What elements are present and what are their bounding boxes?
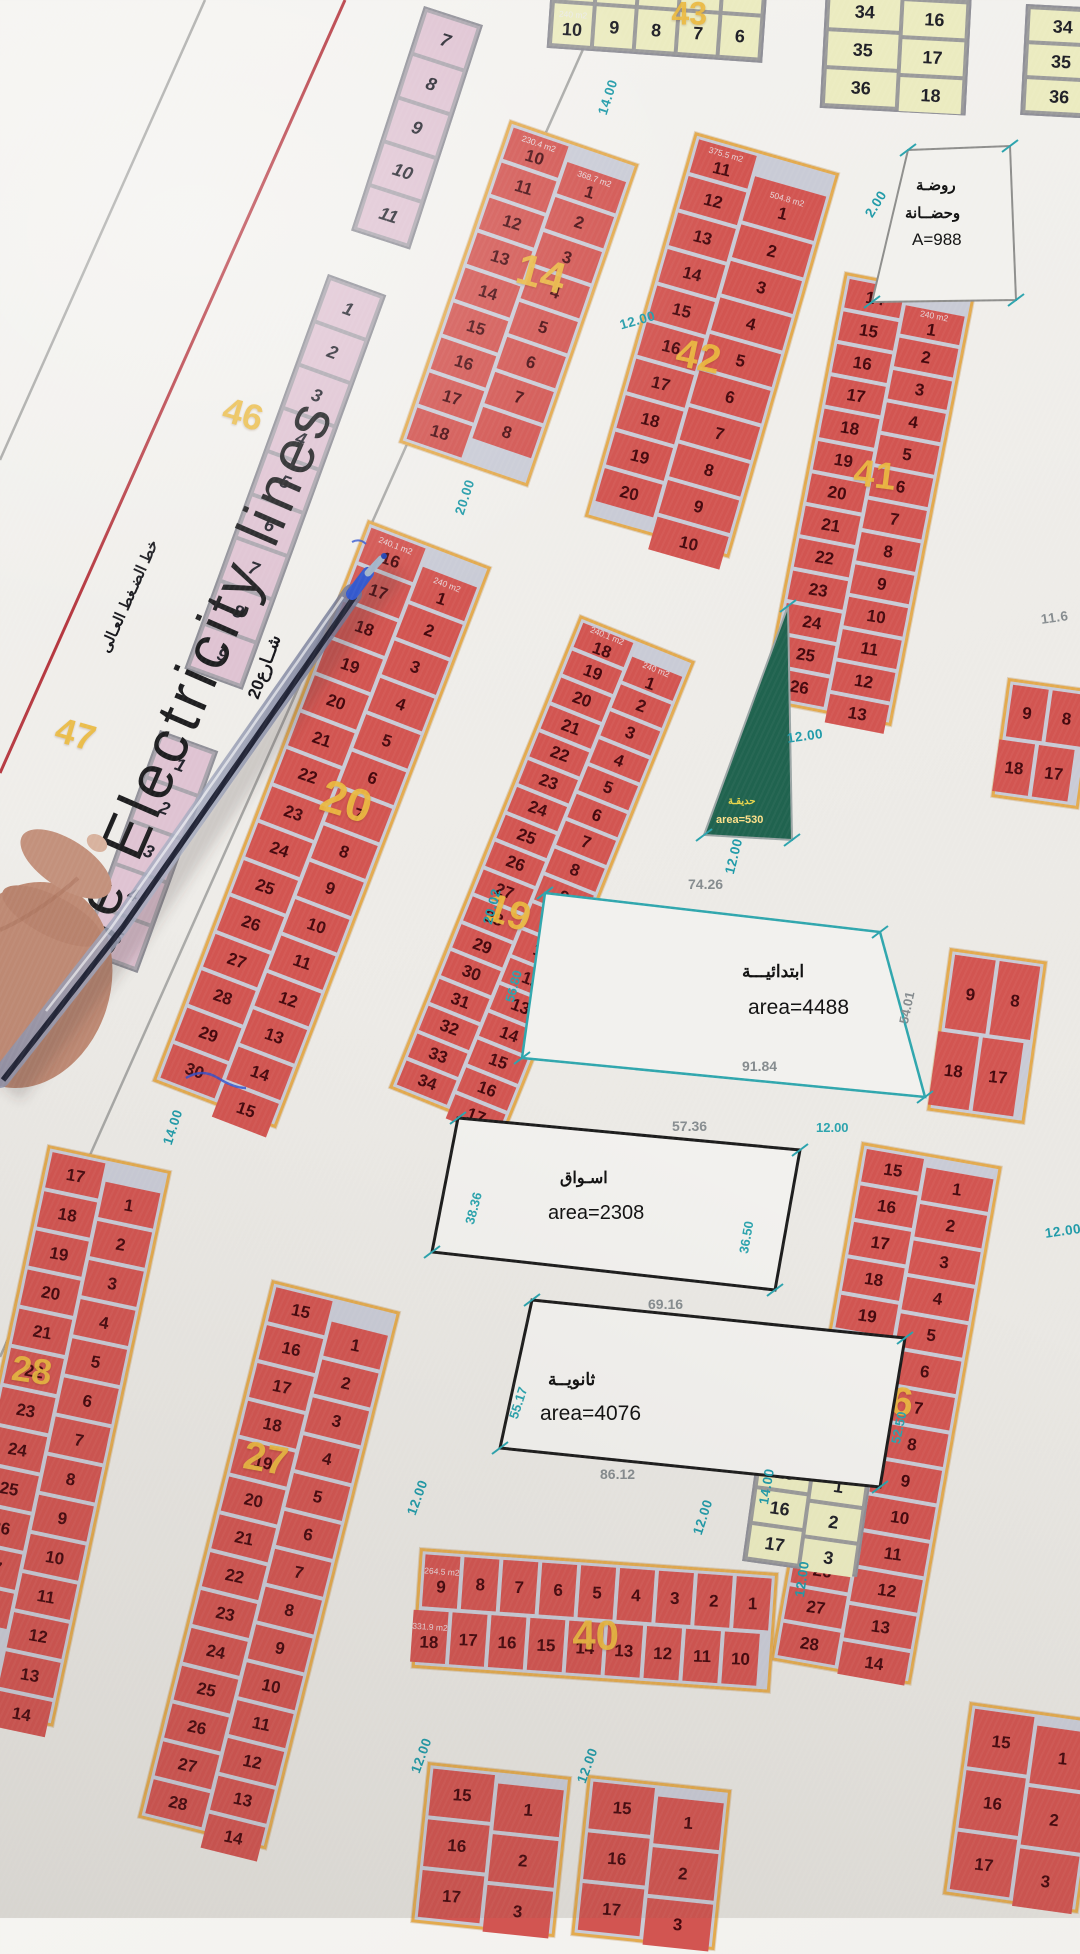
plot-number: 3 <box>106 1274 118 1292</box>
plot-number: 16 <box>280 1339 302 1360</box>
plot-number: 2 <box>340 1374 353 1393</box>
plot-number: 24 <box>801 613 822 633</box>
facility-elementary-school-text-2: 74.26 <box>688 876 723 892</box>
facility-secondary-school-text-1: area=4076 <box>540 1402 641 1426</box>
plot-number: 6 <box>895 478 907 496</box>
plot-number: 14 <box>497 1023 521 1045</box>
plot-number: 17 <box>649 373 671 394</box>
plot-number: 2 <box>1049 1811 1060 1829</box>
plot-43-9: 9 <box>594 6 635 49</box>
plot-number: 7 <box>579 833 594 852</box>
plot-number: 19 <box>338 654 361 676</box>
facility-market-text-4: 38.36 <box>462 1191 485 1226</box>
facility-nursery-tick-0 <box>900 144 916 156</box>
plot-number: 14 <box>681 263 703 284</box>
plot-number: 7 <box>514 1578 524 1595</box>
plot-number: 21 <box>233 1528 255 1549</box>
plot-bottom-red-1-15: 15 <box>428 1769 495 1822</box>
plot-number: 25 <box>514 825 538 847</box>
dimension-label-12.00-10: 12.00 <box>404 1478 431 1517</box>
facility-nursery <box>872 146 1016 302</box>
plot-number: 24 <box>6 1439 28 1459</box>
plot-number: 25 <box>253 875 276 897</box>
plot-number: 31 <box>448 989 472 1011</box>
plot-number: 12 <box>876 1581 897 1600</box>
plot-number: 34 <box>854 3 875 22</box>
plot-40-11: 11 <box>682 1629 721 1683</box>
plot-28-4: 4 <box>73 1299 135 1346</box>
facility-market-tick-3 <box>424 1246 440 1258</box>
plot-number: 9 <box>57 1509 69 1527</box>
block-44: 343536161718 <box>820 0 972 115</box>
facility-elementary-school-tick-1 <box>872 926 888 938</box>
plot-number: 9 <box>900 1472 912 1490</box>
plot-number: 13 <box>691 227 713 248</box>
plot-number: 5 <box>734 351 747 370</box>
plot-bottom-red-2-17: 17 <box>578 1883 645 1936</box>
plot-number: 5 <box>901 446 913 464</box>
plot-number: 35 <box>852 40 873 59</box>
block-26: 1516171819202122232425262728123456789101… <box>771 1142 1002 1685</box>
plot-number: 8 <box>337 842 351 861</box>
plot-number: 26 <box>503 852 527 874</box>
plot-number: 1 <box>123 1196 135 1214</box>
plot-28-13: 13 <box>0 1651 61 1698</box>
plot-26-14: 14 <box>837 1641 910 1685</box>
plot-number: 36 <box>1049 87 1070 106</box>
plot-number: 11 <box>859 639 879 659</box>
facility-market-tick-2 <box>767 1284 783 1296</box>
plot-number: 10 <box>390 160 415 183</box>
dimension-label-11.6-6: 11.6 <box>1040 608 1069 627</box>
plot-number: 1 <box>925 321 937 339</box>
plot-number: 18 <box>1003 758 1024 777</box>
plot-26-28: 28 <box>778 1623 841 1666</box>
plot-number: 2 <box>422 621 436 640</box>
plot-41-21: 21 <box>800 506 861 545</box>
plot-40-16: 16 <box>488 1615 527 1669</box>
corridor-line-0 <box>0 0 205 460</box>
plot-bottom-red-3-15: 15 <box>967 1709 1034 1775</box>
plot-44-34: 34 <box>829 0 901 31</box>
plot-number: 18 <box>920 86 941 105</box>
plot-number: 9 <box>876 575 888 593</box>
plot-number: 16 <box>982 1794 1003 1813</box>
block-40: 264.5 m2987654321331.9 m2181716151413121… <box>412 1548 778 1693</box>
plot-number: 6 <box>82 1392 94 1410</box>
plot-bottom-red-1-16: 16 <box>423 1819 490 1872</box>
plot-number: 24 <box>267 839 290 861</box>
facility-nursery-text-1: وحضــانة <box>905 204 960 222</box>
plot-number: 25 <box>195 1679 217 1700</box>
facility-secondary-school-text-3: 86.12 <box>600 1466 635 1482</box>
plot-26-19: 19 <box>835 1295 898 1338</box>
plot-number: 3 <box>408 658 422 677</box>
plot-area-note: 331.9 m2 <box>412 1622 448 1633</box>
plot-41-26: 26 <box>769 668 830 707</box>
plot-number: 17 <box>458 1631 478 1649</box>
plot-44-35: 35 <box>827 31 899 69</box>
subdivision-map-photo: 7891011123456789461234547240 m2109876433… <box>0 0 1080 1918</box>
plot-number: 25 <box>0 1478 20 1498</box>
plot-number: 6 <box>724 388 737 407</box>
plot-number: 18 <box>943 1061 964 1080</box>
plot-number: 2 <box>709 1592 719 1609</box>
plot-number: 9 <box>557 888 572 907</box>
plot-number: 8 <box>906 1436 918 1454</box>
plot-28-2: 2 <box>90 1221 152 1268</box>
plot-number: 33 <box>426 1044 450 1066</box>
plot-bottom-yellow-2: 2 <box>805 1503 861 1542</box>
plot-number: 28 <box>798 1634 819 1653</box>
plot-number: 2 <box>678 1865 689 1883</box>
plot-44-17: 17 <box>901 39 965 76</box>
facility-elementary-school-text-0: ابتدائيـــة <box>742 962 804 982</box>
plot-number: 9 <box>274 1639 287 1658</box>
plot-number: 2 <box>766 241 779 260</box>
plot-26-15: 15 <box>861 1149 924 1192</box>
plot-number: 4 <box>321 1450 334 1469</box>
block-label-28: 28 <box>9 1347 55 1394</box>
plot-number: 2 <box>572 213 586 232</box>
plot-number: 9 <box>965 985 976 1003</box>
plot-number: 17 <box>270 1377 292 1398</box>
plot-number: 6 <box>590 806 605 825</box>
dimension-label-14.00-0: 14.00 <box>595 77 620 116</box>
plot-number: 18 <box>56 1204 78 1224</box>
plot-44-18: 18 <box>899 77 963 114</box>
plot-28-8: 8 <box>40 1456 102 1503</box>
plot-41-25: 25 <box>775 635 836 674</box>
facility-market-tick-1 <box>792 1144 808 1156</box>
plot-number: 29 <box>470 934 494 956</box>
block-label-47: 47 <box>50 709 100 760</box>
plot-number: 23 <box>537 770 561 792</box>
plot-28-5: 5 <box>65 1338 127 1385</box>
plot-frag-right-2-17: 17 <box>973 1037 1024 1116</box>
plot-number: 4 <box>908 413 920 431</box>
plot-number: 16 <box>851 354 872 374</box>
plot-number: 17 <box>845 386 866 406</box>
plot-number: 10 <box>44 1547 66 1567</box>
block-frag-right-2-group-0: 98 <box>943 953 1043 1043</box>
plot-41-17: 17 <box>825 376 886 415</box>
plot-number: 12 <box>500 212 523 234</box>
plot-number: 29 <box>196 1023 219 1045</box>
plot-number: 14 <box>864 289 885 309</box>
plot-number: 1 <box>643 674 658 693</box>
plot-number: 4 <box>745 315 758 334</box>
plot-bottom-red-1-2: 2 <box>488 1834 559 1888</box>
plot-number: 6 <box>919 1363 931 1381</box>
plot-number: 20 <box>618 482 640 503</box>
facility-park-triangle-text-1: area=530 <box>716 814 763 826</box>
plot-number: 10 <box>541 913 565 935</box>
plot-number: 9 <box>609 18 620 37</box>
plot-number: 1 <box>683 1814 694 1832</box>
plot-number: 1 <box>747 1595 757 1612</box>
plot-number: 8 <box>65 1470 77 1488</box>
block-label-40: 40 <box>572 1611 619 1659</box>
facility-park-triangle-text-0: حديقـة <box>728 796 756 807</box>
dimension-label-14.00-8: 14.00 <box>160 1107 185 1146</box>
plot-number: 18 <box>261 1415 283 1436</box>
plot-number: 6 <box>302 1526 315 1545</box>
plot-number: 17 <box>366 580 389 602</box>
plot-number: 16 <box>475 1078 499 1100</box>
plot-number: 32 <box>437 1016 461 1038</box>
plot-number: 8 <box>1009 992 1020 1010</box>
plot-number: 1 <box>583 183 597 202</box>
plot-bottom-yellow-1: 1 <box>810 1467 866 1506</box>
facility-elementary-school-text-5: 54.01 <box>896 990 917 1025</box>
plot-number: 28 <box>211 986 234 1008</box>
plot-number: 2 <box>325 342 341 362</box>
plot-number: 17 <box>441 1888 461 1906</box>
plot-28-11: 11 <box>15 1573 77 1620</box>
plot-number: 9 <box>692 497 705 516</box>
plot-number: 11 <box>883 1544 903 1563</box>
plot-frag-right-2-18: 18 <box>928 1031 979 1110</box>
facility-secondary-school-text-2: 69.16 <box>648 1296 683 1312</box>
plot-number: 3 <box>1040 1872 1051 1890</box>
plot-40-18: 331.9 m218 <box>410 1610 449 1664</box>
plot-number: 10 <box>561 20 582 39</box>
facility-nursery-text-2: A=988 <box>912 230 962 250</box>
plot-number: 4 <box>932 1290 944 1308</box>
plot-number: 20 <box>570 688 594 710</box>
plot-44-16: 16 <box>903 1 967 38</box>
plot-number: 22 <box>813 548 834 568</box>
plot-40-15: 15 <box>527 1618 566 1672</box>
plot-number: 11 <box>711 159 733 180</box>
plot-number: 11 <box>513 177 535 199</box>
plot-number: 21 <box>310 728 333 750</box>
plot-28-19: 19 <box>29 1230 89 1276</box>
dimension-label-12.00-11: 12.00 <box>690 1497 715 1536</box>
plot-number: 24 <box>525 798 549 820</box>
plot-number: 23 <box>281 802 304 824</box>
plot-number: 21 <box>820 515 841 535</box>
plot-number: 5 <box>536 318 550 337</box>
plot-number: 9 <box>436 1578 446 1595</box>
plot-bottom-red-2-16: 16 <box>583 1832 650 1885</box>
plot-number: 18 <box>863 1270 884 1289</box>
plot-number: 6 <box>734 27 745 46</box>
plot-number: 35 <box>1051 52 1072 71</box>
plot-number: 27 <box>176 1755 198 1776</box>
plot-number: 5 <box>380 732 394 751</box>
plot-bottom-red-3-3: 3 <box>1012 1848 1079 1914</box>
plot-number: 4 <box>98 1313 110 1331</box>
dimension-label-20.00-3: 20.00 <box>452 477 477 516</box>
plot-number: 8 <box>475 1576 485 1593</box>
plot-number: 7 <box>438 30 453 50</box>
plot-number: 34 <box>1052 17 1073 36</box>
plot-number: 19 <box>581 661 605 683</box>
block-44-group-1: 161718 <box>897 0 969 116</box>
block-label-46: 46 <box>218 389 268 440</box>
plot-28-10: 10 <box>23 1534 85 1581</box>
block-frag-right-1: 981817 <box>991 678 1080 809</box>
plot-number: 1 <box>951 1181 963 1199</box>
plot-number: 4 <box>394 695 408 714</box>
plot-number: 30 <box>182 1060 205 1082</box>
facility-park-triangle-tick-1 <box>696 829 712 841</box>
plot-number: 17 <box>1043 764 1064 783</box>
plot-bottom-red-2-2: 2 <box>648 1847 719 1901</box>
plot-bottom-red-2-1: 1 <box>653 1796 724 1850</box>
plot-40-3: 3 <box>655 1571 694 1625</box>
facility-market-text-1: area=2308 <box>548 1202 644 1225</box>
plot-41-16: 16 <box>832 344 893 383</box>
plot-number: 13 <box>262 1025 285 1047</box>
plot-number: 14 <box>863 1654 884 1673</box>
plot-frag-right-1-9: 9 <box>1006 685 1049 742</box>
plot-41-22: 22 <box>794 538 855 577</box>
plot-frag-right-1-17: 17 <box>1032 745 1075 802</box>
plot-number: 16 <box>446 1837 466 1855</box>
plot-number: 14 <box>10 1704 32 1724</box>
plot-43-6: 6 <box>720 15 761 58</box>
plot-number: 15 <box>289 1301 311 1322</box>
plot-number: 4 <box>612 751 627 770</box>
block-bottom-red-1-group-1: 123 <box>480 1781 566 1940</box>
plot-frag-right-2-8: 8 <box>989 961 1040 1040</box>
block-strip-7-11: 7891011 <box>351 6 483 250</box>
plot-number: 10 <box>677 533 699 554</box>
plot-number: 10 <box>304 915 327 937</box>
plot-number: 15 <box>774 1463 796 1484</box>
plot-bottom-red-1-17: 17 <box>418 1870 485 1923</box>
plot-number: 19 <box>856 1306 877 1325</box>
block-bottom-red-2: 151617123 <box>571 1775 731 1950</box>
plot-number: 9 <box>409 118 424 138</box>
plot-40-6: 6 <box>539 1563 578 1617</box>
facility-nursery-tick-2 <box>1008 294 1024 306</box>
plot-number: 27 <box>805 1598 826 1617</box>
plot-number: 15 <box>452 1786 472 1804</box>
plot-number: 7 <box>293 1563 306 1582</box>
plot-number: 15 <box>536 1636 556 1654</box>
plot-number: 26 <box>788 677 809 697</box>
block-strip-7-11-group-0: 7891011 <box>355 10 479 246</box>
plot-number: 22 <box>296 765 319 787</box>
plot-frag-right-2-9: 9 <box>945 955 996 1034</box>
plot-frag-right-1-18: 18 <box>992 739 1035 796</box>
plot-number: 17 <box>64 1165 86 1185</box>
plot-number: 2 <box>920 348 932 366</box>
plot-number: 17 <box>869 1233 890 1252</box>
plot-44-36: 36 <box>825 69 897 107</box>
plot-number: 20 <box>242 1490 264 1511</box>
plot-number: 18 <box>352 617 375 639</box>
plot-number: 20 <box>850 1343 871 1362</box>
block-28: 1718192021222324252627281234567891011121… <box>0 1145 171 1727</box>
plot-number: 30 <box>459 962 483 984</box>
plot-number: 10 <box>731 1650 751 1668</box>
block-label-43: 43 <box>671 0 707 33</box>
plot-number: 27 <box>225 949 248 971</box>
facility-secondary-school-tick-0 <box>524 1294 540 1306</box>
plot-number: 7 <box>73 1431 85 1449</box>
block-43: 240 m210987643 <box>547 0 768 63</box>
plot-number: 17 <box>988 1067 1009 1086</box>
plot-number: 3 <box>670 1589 680 1606</box>
plot-number: 19 <box>832 451 853 471</box>
plot-number: 11 <box>291 952 314 974</box>
plot-number: 3 <box>914 381 926 399</box>
plot-number: 14 <box>248 1062 271 1084</box>
facility-nursery-tick-1 <box>1002 140 1018 152</box>
plot-number: 11 <box>251 1714 272 1734</box>
plot-28-7: 7 <box>48 1417 110 1464</box>
plot-number: 15 <box>670 300 692 321</box>
plot-43-partial <box>723 0 762 14</box>
plot-number: 22 <box>223 1566 245 1587</box>
plot-40-1: 1 <box>733 1576 772 1630</box>
facility-secondary-school-text-4: 55.17 <box>506 1385 530 1421</box>
plot-number: 18 <box>839 418 860 438</box>
plot-28-24: 24 <box>0 1426 47 1472</box>
plot-number: 25 <box>795 645 816 665</box>
plot-45-edge-34: 34 <box>1029 9 1080 43</box>
plot-number: 15 <box>882 1161 903 1180</box>
plot-number: 1 <box>523 1801 534 1819</box>
plot-40-4: 4 <box>616 1568 655 1622</box>
plot-28-1: 1 <box>98 1182 160 1229</box>
plot-number: 11 <box>377 204 400 227</box>
plot-number: 28 <box>167 1793 189 1814</box>
plot-number: 10 <box>865 607 886 627</box>
plot-28-14: 14 <box>0 1690 52 1737</box>
plot-40-10: 10 <box>721 1631 760 1685</box>
facility-market-text-3: 12.00 <box>816 1120 849 1135</box>
plot-26-18: 18 <box>842 1258 905 1301</box>
plot-41-24: 24 <box>781 603 842 642</box>
plot-number: 7 <box>889 510 901 528</box>
plot-number: 14 <box>476 282 499 304</box>
plot-26-20: 20 <box>829 1331 892 1374</box>
plot-40-17: 17 <box>449 1612 488 1666</box>
plot-bottom-red-2-3: 3 <box>643 1898 714 1952</box>
plot-number: 2 <box>634 696 649 715</box>
plot-number: 1 <box>340 299 356 319</box>
facility-market-text-0: اسـواق <box>560 1168 608 1188</box>
plot-number: 16 <box>924 10 945 29</box>
plot-41-23: 23 <box>788 571 849 610</box>
plot-number: 18 <box>639 409 661 430</box>
plot-area-note: 264.5 m2 <box>424 1567 460 1578</box>
plot-bottom-red-3-16: 16 <box>958 1770 1025 1836</box>
block-41: 14151617181920212223242526240 m212345678… <box>762 272 975 726</box>
plot-number: 22 <box>837 1416 858 1435</box>
plot-number: 8 <box>568 860 583 879</box>
plot-number: 7 <box>913 1399 925 1417</box>
plot-number: 11 <box>36 1587 57 1607</box>
facility-secondary-school-tick-3 <box>492 1442 508 1454</box>
electricity-lines-title-ar: خط الضـغط العـالى <box>96 537 162 655</box>
plot-number: 3 <box>623 724 638 743</box>
plot-28-20: 20 <box>20 1269 80 1315</box>
plot-number: 3 <box>822 1548 834 1567</box>
block-label-41: 41 <box>851 452 898 500</box>
plot-number: 23 <box>214 1604 236 1625</box>
plot-number: 15 <box>612 1799 632 1817</box>
plot-number: 12 <box>241 1752 263 1773</box>
plot-number: 12 <box>853 672 874 692</box>
plot-number: 8 <box>424 74 439 94</box>
